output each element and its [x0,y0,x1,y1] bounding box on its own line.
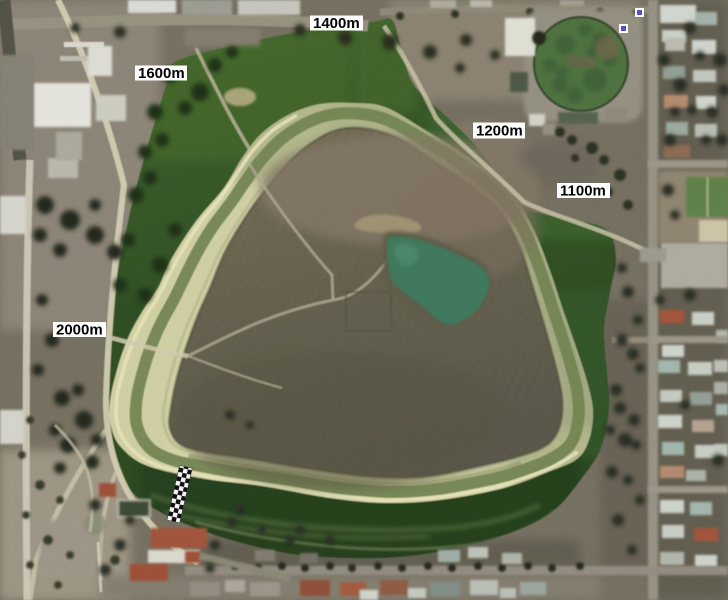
svg-text:1600m: 1600m [138,65,185,82]
svg-text:2000m: 2000m [56,322,103,339]
svg-text:1400m: 1400m [313,15,360,32]
svg-text:1200m: 1200m [476,123,523,140]
svg-text:1100m: 1100m [560,183,606,200]
